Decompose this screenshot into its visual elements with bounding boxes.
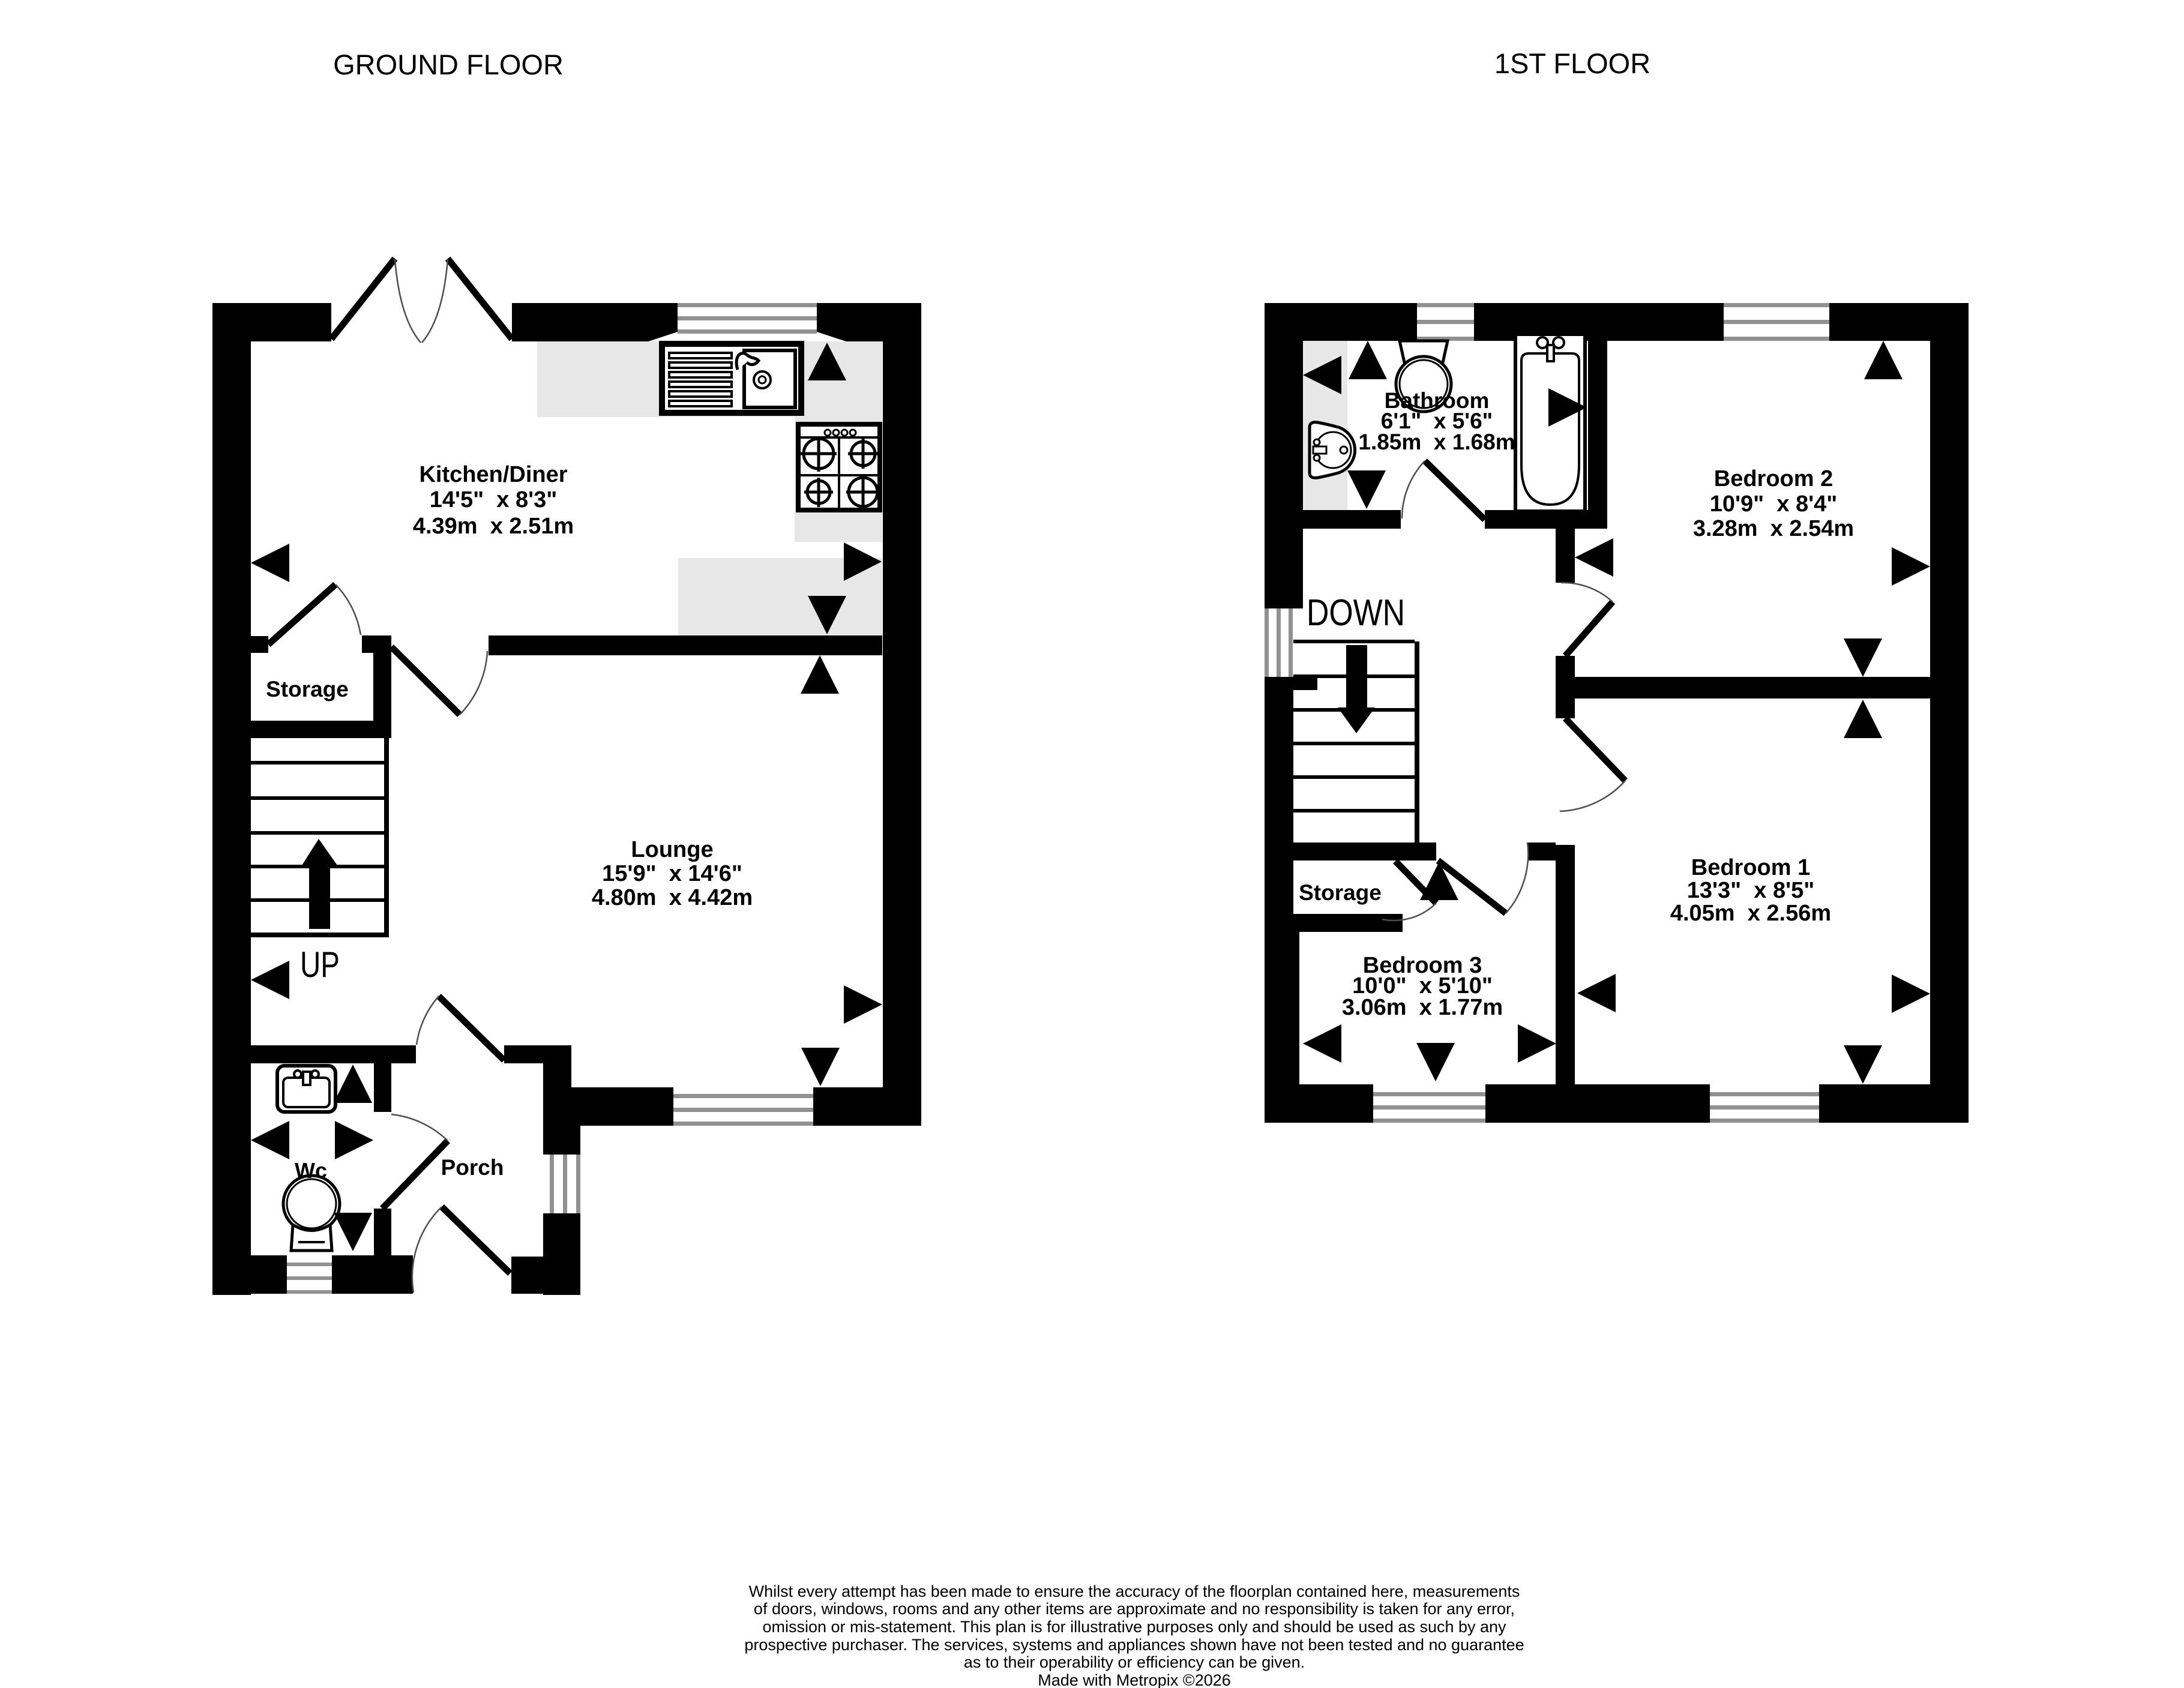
svg-text:13'3" x 8'5": 13'3" x 8'5" — [1687, 878, 1815, 903]
svg-text:4.05m x 2.56m: 4.05m x 2.56m — [1670, 901, 1831, 926]
svg-text:Wc: Wc — [295, 1158, 327, 1183]
svg-text:Storage: Storage — [1299, 880, 1382, 905]
svg-text:of doors, windows, rooms and a: of doors, windows, rooms and any other i… — [754, 1600, 1515, 1618]
svg-text:4.39m x 2.51m: 4.39m x 2.51m — [413, 514, 574, 539]
svg-text:3.06m x 1.77m: 3.06m x 1.77m — [1342, 995, 1503, 1020]
svg-text:omission or mis-statement. Thi: omission or mis-statement. This plan is … — [762, 1618, 1506, 1636]
svg-text:Whilst every attempt has been: Whilst every attempt has been made to en… — [749, 1582, 1520, 1600]
svg-text:3.28m x 2.54m: 3.28m x 2.54m — [1693, 516, 1854, 541]
svg-text:10'9" x 8'4": 10'9" x 8'4" — [1710, 491, 1838, 517]
svg-text:as to their operability or eff: as to their operability or efficiency ca… — [964, 1653, 1305, 1671]
svg-text:1ST FLOOR: 1ST FLOOR — [1494, 47, 1650, 79]
svg-text:GROUND FLOOR: GROUND FLOOR — [333, 49, 564, 80]
svg-text:Bedroom 2: Bedroom 2 — [1714, 466, 1833, 491]
svg-text:Lounge: Lounge — [631, 837, 713, 862]
svg-text:4.80m x 4.42m: 4.80m x 4.42m — [592, 885, 753, 910]
svg-text:prospective purchaser. The ser: prospective purchaser. The services, sys… — [744, 1636, 1524, 1654]
svg-text:Kitchen/Diner: Kitchen/Diner — [419, 462, 567, 487]
svg-text:Bedroom 1: Bedroom 1 — [1691, 855, 1810, 880]
svg-text:Porch: Porch — [441, 1155, 504, 1180]
svg-text:14'5" x 8'3": 14'5" x 8'3" — [430, 487, 558, 512]
svg-text:Storage: Storage — [266, 677, 349, 701]
svg-text:UP: UP — [300, 945, 340, 985]
svg-text:15'9" x 14'6": 15'9" x 14'6" — [602, 861, 742, 886]
svg-text:1.85m x 1.68m: 1.85m x 1.68m — [1358, 430, 1515, 454]
svg-text:Made with Metropix ©2026: Made with Metropix ©2026 — [1038, 1671, 1231, 1688]
svg-text:DOWN: DOWN — [1307, 592, 1405, 634]
